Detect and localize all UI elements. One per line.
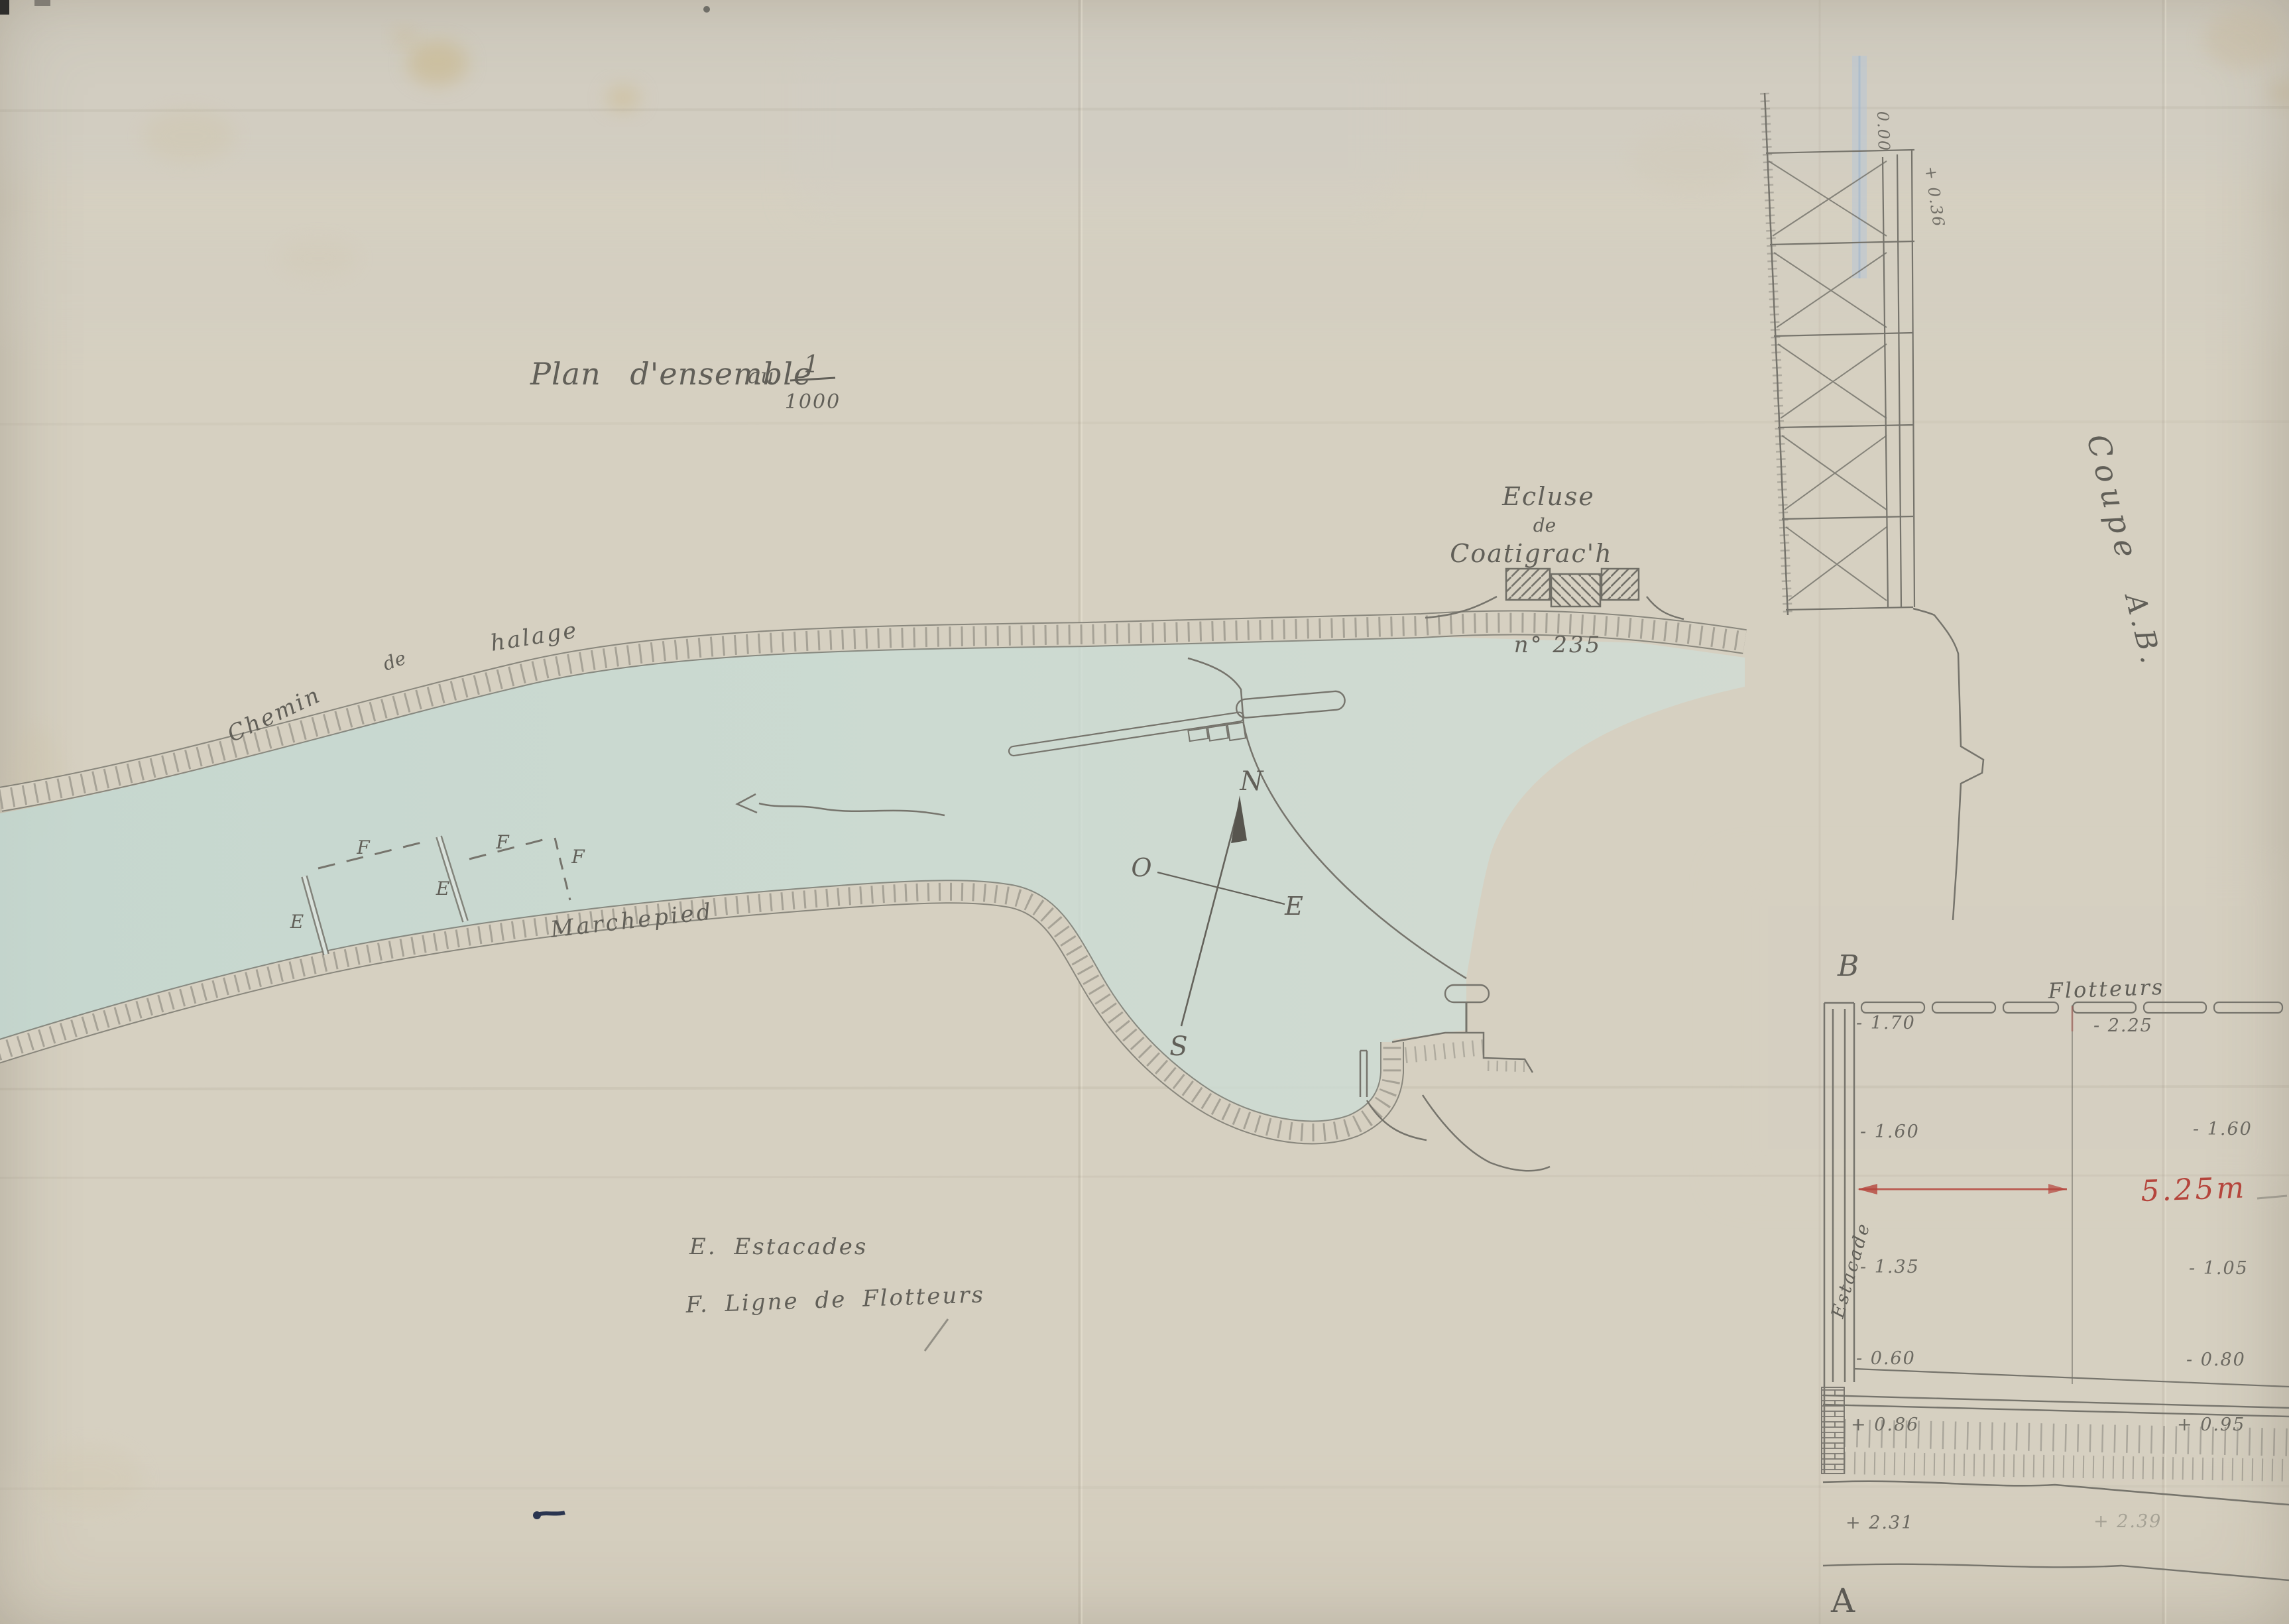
compass-west-label: O (1131, 853, 1151, 882)
lock-number: n° 235 (1514, 632, 1602, 658)
compass-north-label: N (1240, 766, 1265, 797)
truss-elevation: 0.00 + 0.36 (1765, 56, 1983, 920)
compass-south-label: S (1169, 1031, 1187, 1062)
legend-flotteurs: F. Ligne de Flotteurs (685, 1281, 986, 1318)
scanned-plan-sheet: N O E S Plan d'ensemble au 1 1000 Chemin… (0, 0, 2289, 1624)
point-b-label: B (1837, 949, 1859, 983)
lock-name-line1: Ecluse (1501, 482, 1595, 511)
title-fraction-numerator: 1 (804, 351, 819, 378)
legend-estacades: E. Estacades (689, 1234, 868, 1260)
elevation-label: - 1.60 (2193, 1119, 2253, 1139)
coupe-ref: A.B. (2118, 588, 2168, 670)
drawing-canvas: N O E S Plan d'ensemble au 1 1000 Chemin… (0, 0, 2289, 1624)
towpath-word-halage: halage (489, 617, 580, 657)
elevation-label: - 1.05 (2189, 1258, 2249, 1279)
level-zero-label: 0.00 (1873, 111, 1893, 152)
towpath-word-de: de (380, 647, 409, 675)
elevation-label: - 1.35 (1860, 1257, 1920, 1277)
plan-title: Plan d'ensemble au 1 1000 (530, 351, 841, 414)
bank-promontory (1392, 1033, 1533, 1073)
lock-name-line3: Coatigrac'h (1450, 539, 1612, 568)
elevation-label: - 0.80 (2186, 1350, 2246, 1370)
marker-f1: F (356, 837, 371, 858)
point-a-label: A (1830, 1582, 1855, 1620)
marker-f3: F (571, 846, 585, 868)
marker-e1: E (290, 911, 304, 933)
elevation-label: - 1.70 (1856, 1013, 1916, 1033)
elevation-label: - 0.60 (1856, 1348, 1916, 1369)
title-fraction-denominator: 1000 (785, 390, 841, 414)
lock-wall-right (1602, 569, 1639, 600)
elevation-label: - 2.25 (2093, 1015, 2153, 1036)
lock-wall-left (1506, 569, 1550, 600)
elevation-label: - 1.60 (1860, 1122, 1920, 1142)
dimension-value: 5.25m (2141, 1171, 2247, 1208)
elevation-label: + 2.39 (2093, 1511, 2162, 1532)
compass-east-label: E (1284, 892, 1303, 921)
title-au: au (748, 363, 774, 388)
marker-f2: F (495, 831, 510, 853)
flotteurs-label: Flotteurs (2047, 974, 2165, 1004)
lock-chamber (1551, 574, 1600, 607)
elevation-label: + 0.95 (2177, 1415, 2245, 1435)
coupe-word: Coupe (2080, 431, 2146, 567)
legend: E. Estacades F. Ligne de Flotteurs (685, 1234, 986, 1351)
lock-name-line2: de (1533, 514, 1556, 536)
coupe-title: Coupe A.B. (2080, 431, 2168, 670)
elevation-label: + 0.86 (1851, 1415, 1919, 1435)
elevation-label: + 2.31 (1846, 1513, 1914, 1533)
marker-e2: E (436, 878, 449, 899)
